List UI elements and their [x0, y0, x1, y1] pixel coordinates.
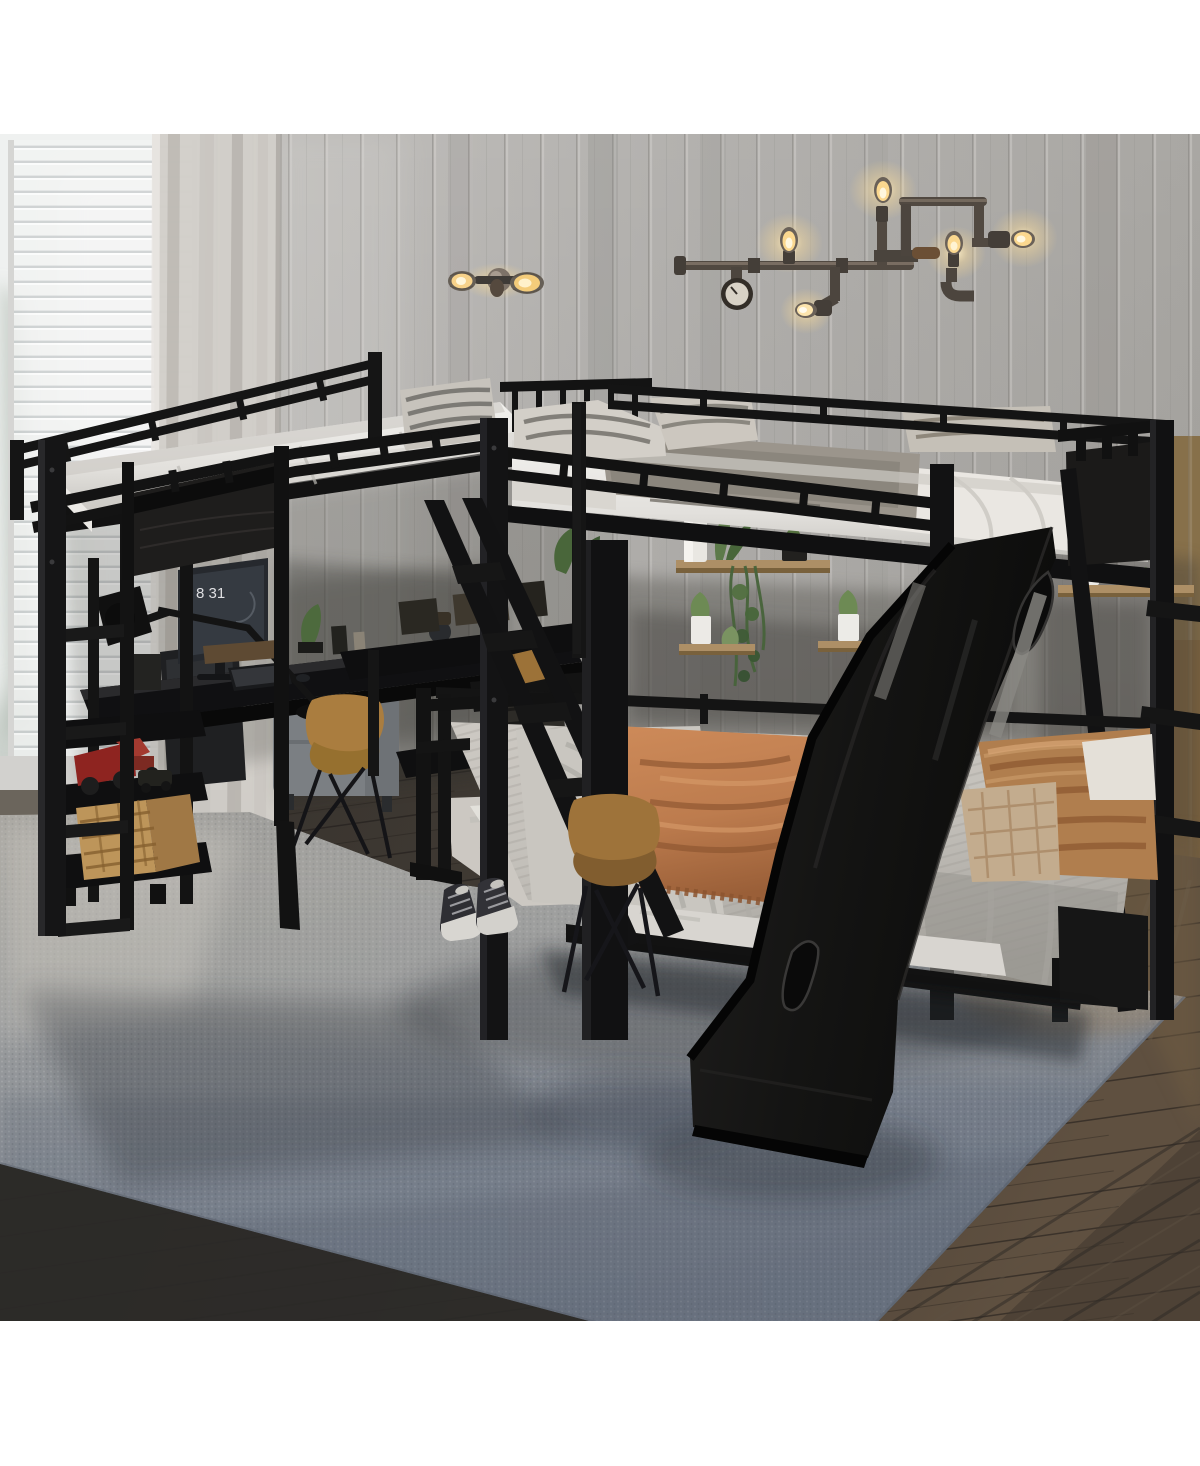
- svg-text:8 31: 8 31: [196, 585, 225, 602]
